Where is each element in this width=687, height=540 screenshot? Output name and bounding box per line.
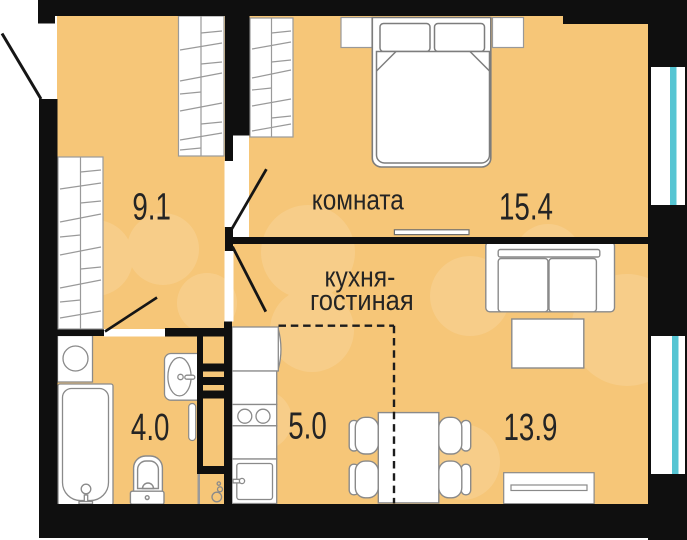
svg-text:комната: комната — [312, 184, 404, 216]
svg-text:5.0: 5.0 — [288, 405, 327, 447]
svg-text:15.4: 15.4 — [499, 186, 553, 228]
svg-text:гостиная: гостиная — [310, 283, 414, 316]
svg-text:4.0: 4.0 — [131, 407, 170, 449]
svg-text:13.9: 13.9 — [504, 407, 558, 449]
svg-text:9.1: 9.1 — [132, 186, 171, 228]
